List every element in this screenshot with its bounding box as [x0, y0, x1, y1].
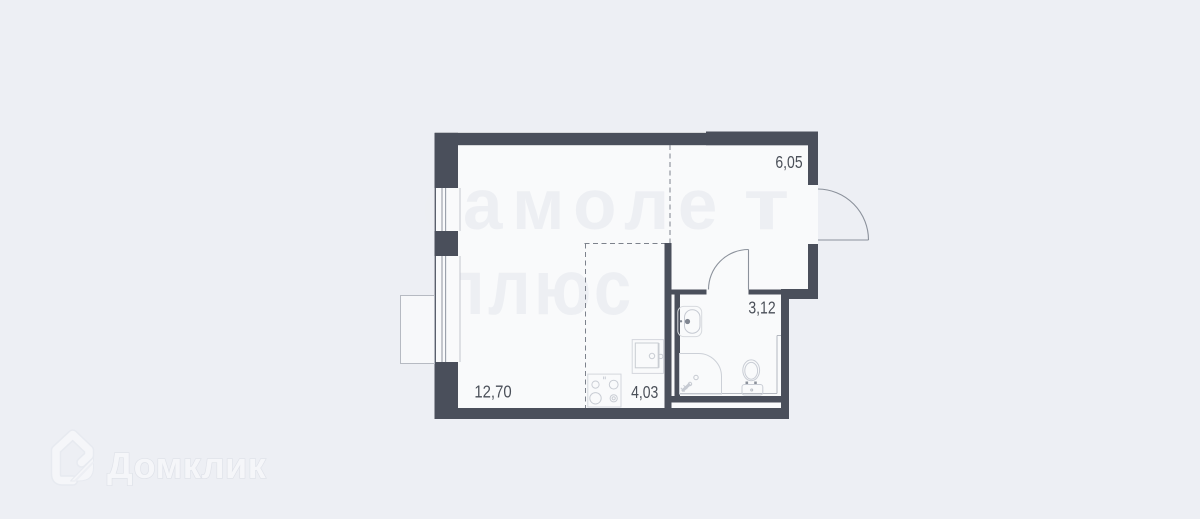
svg-text:6,05: 6,05 — [775, 154, 802, 173]
svg-text:плюс: плюс — [444, 244, 635, 331]
svg-text:амоле: амоле — [463, 166, 727, 245]
svg-text:12,70: 12,70 — [474, 383, 511, 402]
svg-text:3,12: 3,12 — [748, 299, 775, 318]
svg-text:4,03: 4,03 — [631, 383, 658, 402]
svg-text:т: т — [744, 165, 790, 244]
svg-text:Домклик: Домклик — [107, 445, 267, 486]
